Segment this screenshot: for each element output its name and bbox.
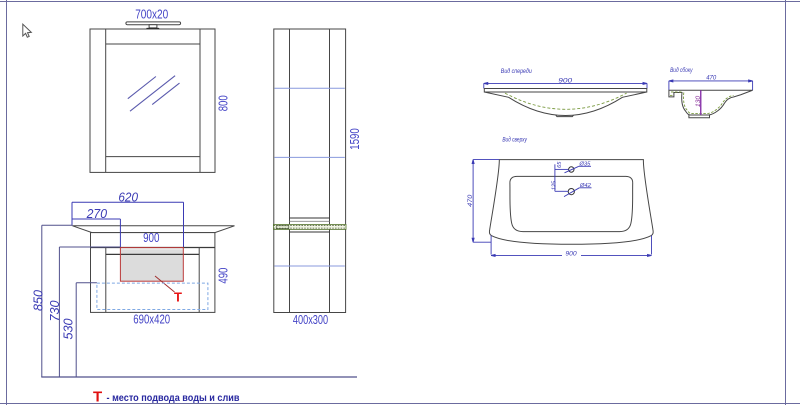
svg-text:530: 530 xyxy=(60,318,75,340)
svg-text:490: 490 xyxy=(216,268,231,284)
svg-text:470: 470 xyxy=(467,194,474,207)
svg-text:- место подвода воды и слив: - место подвода воды и слив xyxy=(107,393,240,404)
svg-text:Вид спереди: Вид спереди xyxy=(501,69,533,75)
svg-text:620: 620 xyxy=(118,190,138,204)
svg-text:130: 130 xyxy=(695,96,702,108)
svg-text:Ø42: Ø42 xyxy=(579,183,592,189)
svg-text:700x20: 700x20 xyxy=(135,7,168,22)
svg-text:690x420: 690x420 xyxy=(133,311,170,326)
svg-text:125: 125 xyxy=(552,180,558,190)
svg-text:270: 270 xyxy=(86,207,107,221)
svg-text:400x300: 400x300 xyxy=(293,312,328,327)
svg-text:900: 900 xyxy=(143,230,159,245)
svg-text:Вид сверху: Вид сверху xyxy=(502,138,527,144)
svg-text:800: 800 xyxy=(216,95,231,111)
svg-text:900: 900 xyxy=(558,77,572,84)
svg-text:Вид сбоку: Вид сбоку xyxy=(670,68,693,74)
svg-text:T: T xyxy=(174,290,182,305)
svg-text:65: 65 xyxy=(557,161,563,168)
svg-text:1590: 1590 xyxy=(347,128,362,150)
svg-text:900: 900 xyxy=(565,251,577,258)
svg-text:850: 850 xyxy=(30,289,45,311)
svg-text:730: 730 xyxy=(47,300,62,322)
svg-text:470: 470 xyxy=(706,75,716,82)
svg-text:T: T xyxy=(93,389,102,405)
svg-text:Ø35: Ø35 xyxy=(578,162,591,168)
